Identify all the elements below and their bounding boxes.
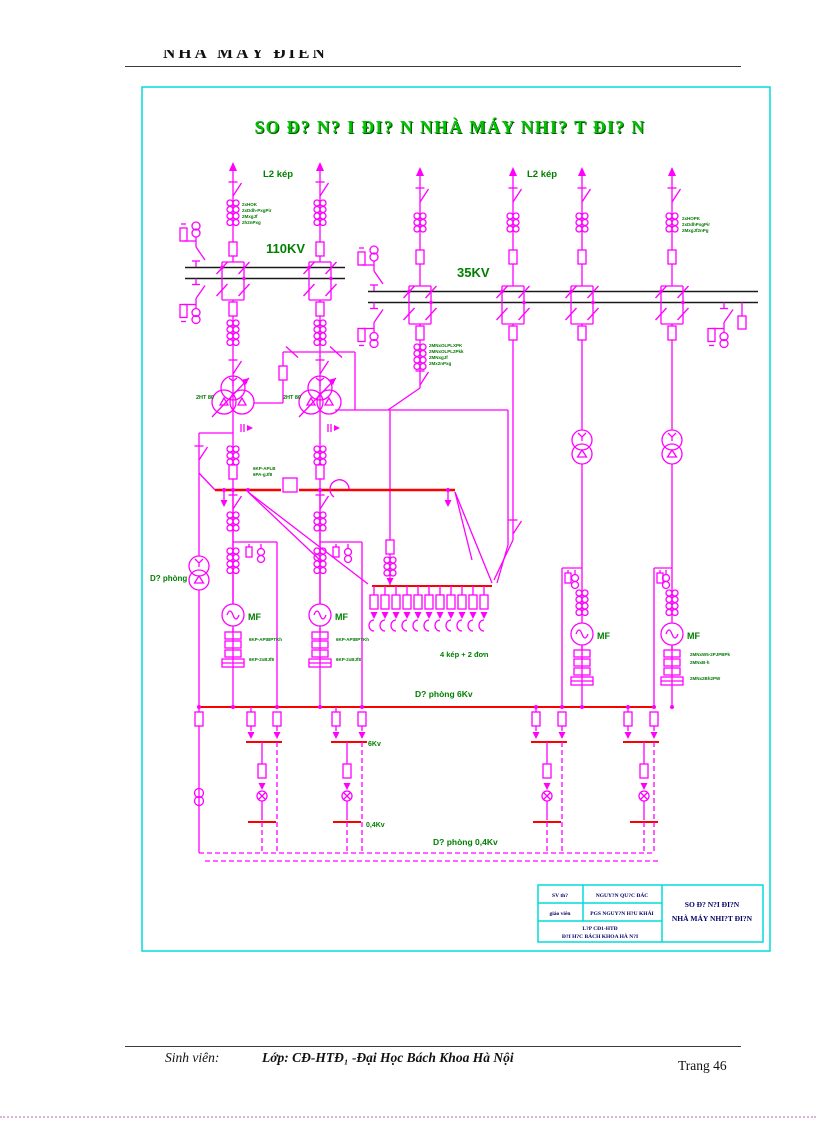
diagram-title: SO Đ? N? I ĐI? N NHÀ MÁY NHI? T ĐI? N xyxy=(254,117,645,137)
page-header: NHÀ MÁY ĐIÊN xyxy=(163,50,423,66)
electrical-one-line-diagram: SO Đ? N? I ĐI? N NHÀ MÁY NHI? T ĐI? N SO… xyxy=(138,84,778,964)
spec-35kv: 2xDdhPxgPir xyxy=(682,222,710,227)
generator-block-1 xyxy=(222,490,277,707)
spec-35kv: 2xHOPK xyxy=(682,216,701,221)
spec-35kv-tie: 2MNxgJf xyxy=(429,355,448,360)
label-transformer1: 2HT 80 xyxy=(196,395,214,401)
bay-35kv-feeder-supply xyxy=(494,324,522,583)
vt-arrester-110kv-bottom xyxy=(180,279,205,324)
spec-gen2: 6KP-2xBJf8 xyxy=(336,657,362,662)
vt-arrester-35kv-bottom xyxy=(358,303,383,348)
title-block: SV th? NGUY?N QU?C ĐÁC giáo viên PGS NGU… xyxy=(538,885,763,942)
transformer-2winding-3 xyxy=(572,430,592,464)
header-title: NHÀ MÁY ĐIÊN xyxy=(163,50,423,63)
label-reserve-04kv: D? phòng 0,4Kv xyxy=(433,837,498,847)
transformer-reserve xyxy=(189,556,209,590)
spec-35kv: 2MxgJf2nPg xyxy=(682,228,709,233)
spec-35kv-tie: 2Mx2nPxg xyxy=(429,361,452,366)
titleblock-title-2: NHÀ MÁY NHI?T ĐI?N xyxy=(672,913,753,923)
distribution-group-4 xyxy=(623,707,659,853)
bay-35kv-lines xyxy=(404,167,689,324)
vt-arrester-35kv-right xyxy=(708,303,746,348)
spec-110kv: 2xDdh-PxgPir xyxy=(242,208,272,213)
footer-student-label: Sinh viên: xyxy=(165,1050,219,1066)
distribution-group-2 xyxy=(331,707,367,853)
label-generator-4: MF xyxy=(687,631,700,641)
label-l2kep-left: L2 kép xyxy=(263,169,293,180)
generator-block-2 xyxy=(309,490,362,707)
spec-gen4: 2MNxB-h xyxy=(690,660,710,665)
footer-rule xyxy=(125,1046,741,1047)
spec-gen4: 2MNx2Bh2PW xyxy=(690,676,721,681)
bay-35kv-tie xyxy=(384,324,429,586)
footer-page-number: Trang 46 xyxy=(678,1058,727,1074)
spec-35kv-tie: 2MNxOLPLXPK xyxy=(429,343,463,348)
label-6kv: 6Kv xyxy=(368,741,381,748)
label-04kv: 0,4Kv xyxy=(366,822,385,829)
footer-class-label: Lớp: CĐ-HTĐ₁ -Đại Học Bách Khoa Hà Nội xyxy=(262,1050,514,1066)
vt-arrester-35kv-top xyxy=(358,246,383,291)
page-bottom-dots xyxy=(0,1116,816,1118)
generator-block-3 xyxy=(562,324,593,707)
document-page: NHÀ MÁY ĐIÊN SO Đ? N? I ĐI? N NHÀ MÁY N xyxy=(0,0,816,1123)
bus-110kv xyxy=(185,268,345,279)
label-35kv: 35KV xyxy=(457,265,490,280)
spec-110kv: 2xHOK xyxy=(242,202,258,207)
generator-1 xyxy=(222,604,244,626)
titleblock-r2c1: giáo viên xyxy=(550,911,571,917)
titleblock-r1c2: NGUY?N QU?C ĐÁC xyxy=(596,891,649,899)
label-feeders: 4 kép + 2 đơn xyxy=(440,650,489,659)
spec-gen2: 6KP-APtBPTKh xyxy=(336,637,369,642)
titleblock-r1c1: SV th? xyxy=(552,893,568,899)
spec-110kv: 2h2nPxg xyxy=(242,220,261,225)
feeder-group-6kv xyxy=(369,586,492,631)
reserve-transformer-column xyxy=(189,433,233,853)
titleblock-r3a: L?P CĐ1-HTĐ xyxy=(582,926,617,932)
spec-110kv: 2MxgJf xyxy=(242,214,258,219)
label-reserve-transformer: D? phòng xyxy=(150,574,187,583)
spec-gen4: 2MNxW5-2PJPBPk xyxy=(690,652,731,657)
transformer-2winding-4 xyxy=(662,430,682,464)
generator-2 xyxy=(309,604,331,626)
bus-generator-red xyxy=(199,473,492,584)
titleblock-title-1: SO Đ? N?I ĐI?N xyxy=(685,900,740,909)
label-generator-1: MF xyxy=(248,612,261,622)
titleblock-r2c2: PGS NGUY?N H?U KHÁI xyxy=(590,909,653,917)
spec-gen1: 6KP-APtBPTKh xyxy=(249,637,282,642)
titleblock-r3b: Đ?I H?C BÁCH KHOA HÀ N?I xyxy=(562,932,638,940)
generator-4 xyxy=(661,623,683,645)
generator-block-4 xyxy=(654,324,683,707)
label-110kv: 110KV xyxy=(266,241,305,256)
header-rule xyxy=(125,66,741,67)
spec-gen1: 6KP-2xBJf8 xyxy=(249,657,275,662)
label-l2kep-right: L2 kép xyxy=(527,169,557,180)
distribution-group-1 xyxy=(246,707,282,853)
label-transformer2: 2HT 80 xyxy=(283,395,301,401)
label-generator-3: MF xyxy=(597,631,610,641)
spec-reactor: 6KP-APLB xyxy=(253,466,276,471)
label-reserve-6kv: D? phòng 6Kv xyxy=(415,689,473,699)
spec-35kv-tie: 2MNxOLPL2Pkk xyxy=(429,349,464,354)
distribution-group-3 xyxy=(531,707,567,853)
label-generator-2: MF xyxy=(335,612,348,622)
reactor-icon xyxy=(330,480,349,497)
spec-reactor: 6PA-gJf8 xyxy=(253,472,273,477)
vt-arrester-110kv-top xyxy=(180,222,205,267)
generator-3 xyxy=(571,623,593,645)
